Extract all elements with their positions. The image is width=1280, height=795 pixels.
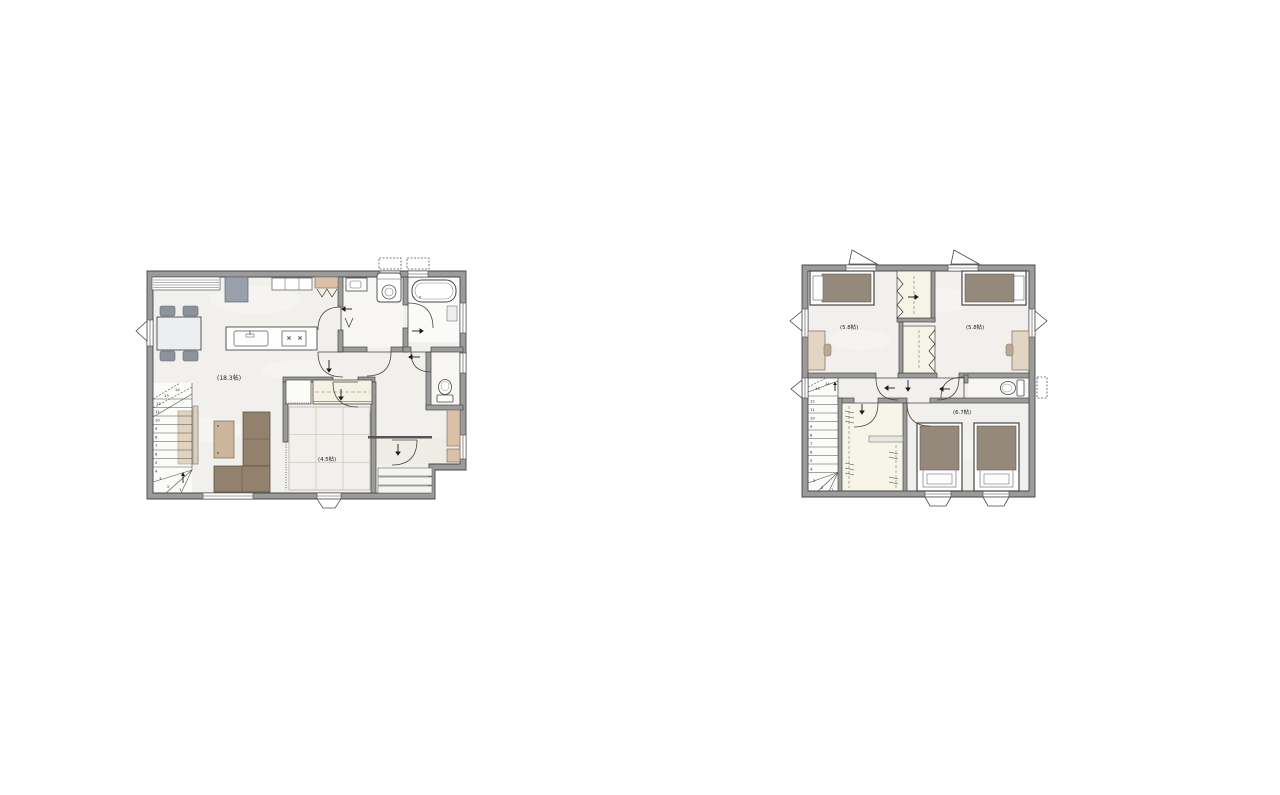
stair-step-number: 2	[821, 486, 823, 490]
stair-step-number: 10	[810, 417, 815, 421]
dining-table	[157, 317, 201, 350]
bed	[974, 423, 1019, 491]
bedroom-right-area-label: (5.8帖)	[966, 323, 984, 331]
shoe-cabinet	[447, 449, 460, 462]
entry-step	[378, 486, 432, 493]
bedroom-bottom-area-label: (6.7帖)	[953, 408, 971, 416]
bath-counter	[447, 306, 457, 321]
stair-step-number: 14	[175, 388, 180, 392]
stair-step-number: 2	[167, 485, 169, 489]
exterior-unit-dashed-boxes	[379, 258, 429, 269]
desk	[1012, 331, 1029, 370]
stair-step-number: 11	[155, 410, 160, 414]
vanity-sink	[346, 278, 367, 291]
desk-chair	[824, 344, 831, 356]
bedroom-left-area-label: (5.8帖)	[840, 323, 858, 331]
stair-step-number: 1	[831, 488, 833, 492]
toilet-2f	[1001, 380, 1025, 396]
stair-step-number: 11	[810, 408, 815, 412]
pillow	[980, 470, 1013, 487]
floor-plan-1f: 14 13 12 11 10 9 8 7 6 5 4 3 2 1	[120, 245, 490, 520]
dining-chair	[183, 306, 198, 316]
bay-window-icon	[317, 499, 341, 508]
stair-step-number: 12	[810, 400, 815, 404]
stair-step-number: 14	[825, 382, 830, 386]
entry-step	[378, 468, 432, 476]
stair-step-number: 1	[179, 488, 181, 492]
toilet-1f	[437, 380, 453, 403]
tatami-closet	[313, 380, 372, 404]
bed	[917, 423, 962, 491]
refrigerator	[225, 277, 248, 302]
entry-step	[378, 477, 432, 485]
stair-step-number: 13	[815, 387, 820, 391]
ldk-area-label: (18.3帖)	[217, 374, 241, 382]
sink	[234, 331, 268, 346]
washing-machine	[377, 273, 401, 302]
stair-step-number: 10	[155, 419, 160, 423]
floor-plan-2f: (5.8帖) (5.8帖) 14 13 12 11 10 9	[775, 240, 1060, 520]
dining-chair	[183, 351, 198, 361]
page-canvas: 14 13 12 11 10 9 8 7 6 5 4 3 2 1	[0, 0, 1280, 795]
kitchen-back-counter	[272, 278, 312, 290]
pillow	[1014, 276, 1024, 300]
desk	[808, 331, 825, 370]
kitchen-island	[226, 327, 317, 350]
pillow	[923, 470, 956, 487]
pantry-cabinet	[315, 277, 338, 288]
dining-chair	[160, 351, 175, 361]
closet-shelf	[869, 436, 903, 442]
tatami-area-label: (4.5帖)	[318, 455, 336, 463]
louver-window	[152, 277, 220, 290]
exterior-dashed-box	[1037, 377, 1047, 398]
stove	[282, 331, 306, 346]
pillow	[813, 276, 823, 300]
dining-chair	[160, 306, 175, 316]
stair-rail	[193, 406, 198, 464]
tatami-storage	[286, 380, 311, 404]
casement-window-icon	[136, 321, 147, 341]
desk-chair	[1006, 344, 1013, 356]
stair-step-number: 13	[164, 394, 169, 398]
stair-step-number: 12	[156, 402, 161, 406]
shoe-cabinet	[447, 410, 460, 446]
side-table	[214, 421, 234, 458]
